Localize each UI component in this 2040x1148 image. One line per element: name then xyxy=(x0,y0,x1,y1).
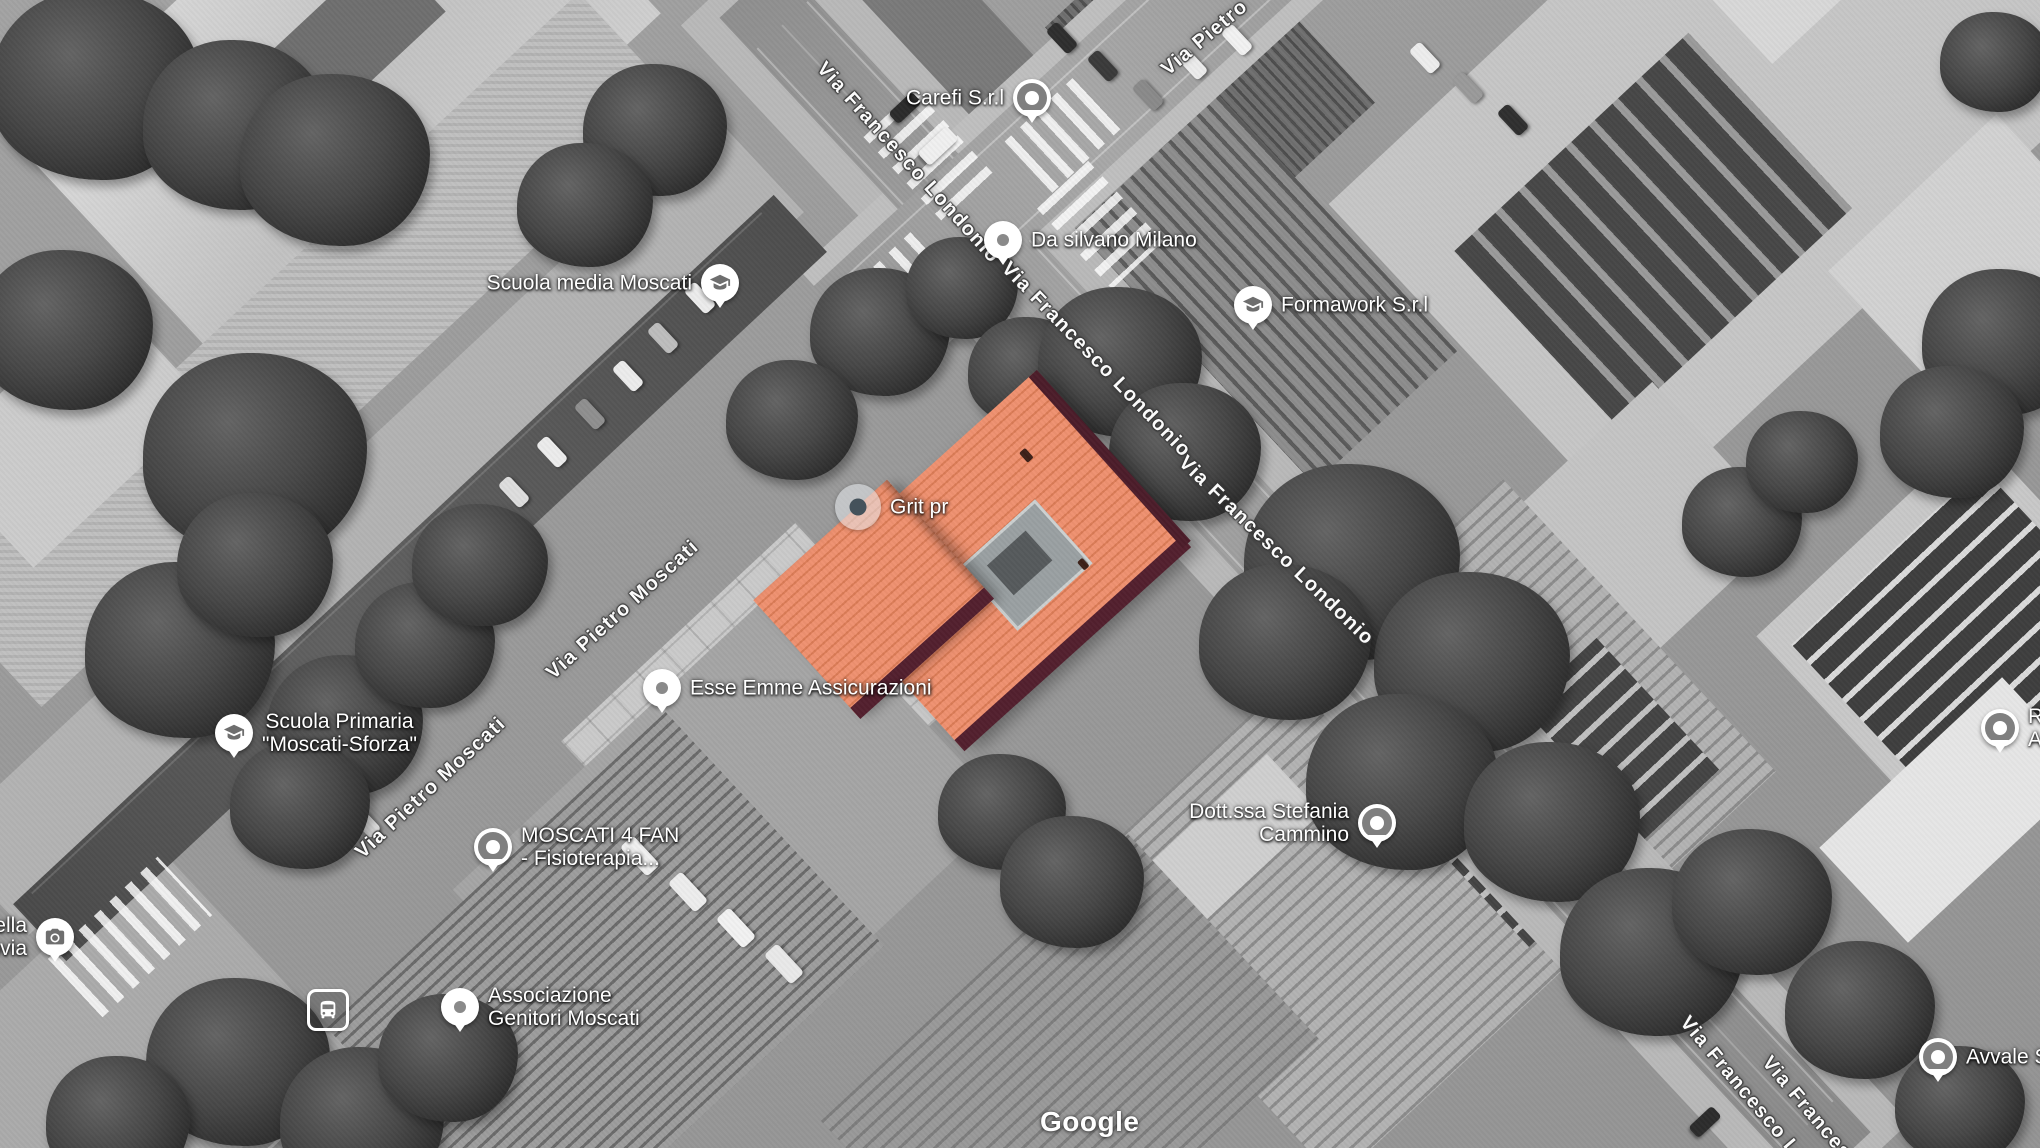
parked-car xyxy=(1409,41,1442,75)
place-pin-icon[interactable] xyxy=(474,828,512,866)
satellite-base xyxy=(0,0,2040,1148)
tree-canopy xyxy=(726,360,858,480)
tree-canopy xyxy=(1880,366,2024,498)
tree-canopy xyxy=(1000,816,1144,948)
place-pin-icon[interactable] xyxy=(1013,79,1051,117)
tree-canopy xyxy=(1199,564,1371,720)
marker-label[interactable]: Scuola Primaria "Moscati-Sforza" xyxy=(262,710,417,756)
place-pin-icon[interactable] xyxy=(1358,804,1396,842)
tree-canopy xyxy=(1746,411,1858,513)
marker-label[interactable]: Dott.ssa Stefania Cammino xyxy=(1189,800,1349,846)
google-logo[interactable]: Google xyxy=(1040,1106,1139,1138)
roof-vent xyxy=(1019,448,1034,463)
tree-canopy xyxy=(1785,941,1935,1079)
school-pin-icon[interactable] xyxy=(215,714,253,752)
camera-icon xyxy=(44,926,66,948)
camera-pin-icon[interactable] xyxy=(36,918,74,956)
skylight-grid-roof xyxy=(1454,33,1852,427)
school-pin-icon[interactable] xyxy=(701,264,739,302)
tree-canopy xyxy=(1940,12,2040,112)
marker-label[interactable]: Re Ar xyxy=(2028,705,2040,751)
place-pin-icon[interactable] xyxy=(441,988,479,1026)
tree-canopy xyxy=(412,504,548,626)
graduation-cap-icon xyxy=(1242,294,1264,316)
courtyard-structure xyxy=(987,531,1052,596)
graduation-cap-icon xyxy=(709,272,731,294)
graduation-cap-icon xyxy=(223,722,245,744)
marker-label[interactable]: Avvale S.p xyxy=(1966,1045,2040,1068)
tree-canopy xyxy=(177,493,333,637)
place-pin-icon[interactable] xyxy=(984,221,1022,259)
tree-canopy xyxy=(1672,829,1832,975)
tree-canopy xyxy=(240,74,430,246)
bus-stop-icon[interactable] xyxy=(307,989,349,1031)
marker-label[interactable]: Grit pr xyxy=(890,495,948,518)
marker-label[interactable]: Associazione Genitori Moscati xyxy=(488,984,640,1030)
marker-label[interactable]: Da silvano Milano xyxy=(1031,228,1197,251)
place-pin-icon[interactable] xyxy=(1919,1038,1957,1076)
bus-icon xyxy=(317,999,339,1021)
marker-label[interactable]: Scuola media Moscati xyxy=(487,271,692,294)
place-pin-icon[interactable] xyxy=(643,669,681,707)
marker-label[interactable]: della ovia xyxy=(0,914,27,960)
tree-canopy xyxy=(230,741,370,869)
map-canvas[interactable]: Via Pietro Via Francesco Londonio Via Fr… xyxy=(0,0,2040,1148)
marker-label[interactable]: Carefi S.r.l xyxy=(906,86,1004,109)
marker-label[interactable]: MOSCATI 4 FAN - Fisioterapia... xyxy=(521,824,679,870)
school-pin-icon[interactable] xyxy=(1234,286,1272,324)
marker-label[interactable]: Formawork S.r.l xyxy=(1281,293,1428,316)
place-pin-icon[interactable] xyxy=(1981,709,2019,747)
marker-label[interactable]: Esse Emme Assicurazioni xyxy=(690,676,932,699)
tree-canopy xyxy=(517,143,653,267)
faded-dot-marker-icon[interactable] xyxy=(835,484,881,530)
